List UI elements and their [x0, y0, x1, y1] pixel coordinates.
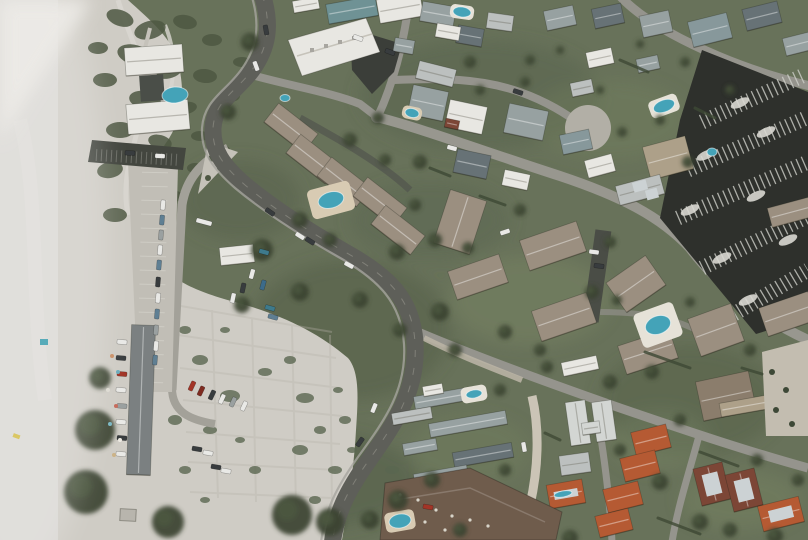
shrub — [202, 34, 222, 46]
tree — [291, 283, 309, 301]
shrub — [385, 466, 399, 474]
tree — [525, 55, 535, 65]
vehicle — [153, 325, 158, 335]
tree — [723, 523, 737, 537]
tree — [448, 343, 462, 357]
shrub — [347, 447, 357, 453]
tree — [556, 46, 564, 54]
tree — [352, 292, 368, 308]
tree — [241, 33, 259, 51]
tree — [393, 323, 407, 337]
tree — [462, 242, 474, 254]
shrub — [200, 497, 210, 503]
tree — [682, 156, 694, 168]
swimming-pool — [280, 95, 290, 102]
aerial-photo — [0, 0, 808, 540]
tree — [498, 325, 512, 339]
beach-umbrella — [118, 438, 122, 442]
tree — [520, 77, 530, 87]
tree — [541, 361, 553, 373]
tree — [372, 112, 384, 124]
vehicle — [155, 293, 160, 303]
shrub — [292, 445, 308, 455]
building-roof — [126, 99, 190, 134]
tree — [534, 344, 546, 356]
tree — [388, 490, 408, 510]
vehicle — [158, 230, 163, 240]
tree — [234, 297, 250, 313]
building-roof — [393, 37, 415, 54]
vehicle — [154, 309, 159, 319]
tree — [612, 295, 622, 305]
beach-umbrella — [110, 354, 114, 358]
vehicle — [160, 200, 165, 210]
tree — [499, 464, 511, 476]
tree — [379, 154, 391, 166]
shrub — [220, 327, 230, 333]
vehicle — [116, 419, 126, 424]
tree — [725, 85, 735, 95]
tree — [685, 297, 695, 307]
tree — [409, 199, 421, 211]
tree — [617, 127, 627, 137]
shrub — [314, 426, 326, 434]
building-roof — [581, 421, 600, 435]
tree — [636, 40, 644, 48]
shrub — [235, 437, 245, 443]
vehicle — [159, 215, 164, 225]
roof-vent — [434, 508, 437, 511]
vehicle — [117, 339, 127, 344]
beach-umbrella — [116, 370, 120, 374]
tree — [792, 474, 804, 486]
tree — [744, 344, 756, 356]
tree — [680, 57, 690, 67]
tree — [604, 236, 616, 248]
beach-umbrella — [108, 422, 112, 426]
vehicle — [155, 277, 160, 287]
vehicle — [116, 387, 126, 392]
tree — [692, 514, 708, 530]
tree — [585, 285, 599, 299]
vehicle — [117, 403, 127, 408]
vehicle — [156, 260, 161, 270]
roof-vent — [450, 514, 453, 517]
tree — [645, 365, 659, 379]
tree — [428, 233, 442, 247]
shrub — [88, 42, 108, 54]
tree — [361, 511, 379, 529]
shrub — [328, 466, 342, 474]
shrub — [333, 387, 343, 393]
tree — [494, 384, 506, 396]
tree — [603, 375, 617, 389]
building-roof — [126, 325, 155, 476]
vehicle — [157, 245, 162, 255]
vehicle — [125, 150, 135, 155]
roof-vent — [423, 520, 426, 523]
tree — [475, 85, 485, 95]
swimming-pool — [707, 148, 717, 156]
tree — [389, 244, 405, 260]
shrub — [179, 466, 191, 474]
shrub — [309, 496, 321, 504]
tree — [614, 444, 626, 456]
beach-umbrella — [106, 388, 110, 392]
shrub — [203, 426, 217, 434]
beach-umbrella — [114, 404, 118, 408]
concrete-pads — [762, 340, 808, 436]
vehicle — [155, 153, 165, 158]
shrub — [192, 355, 208, 365]
vehicle — [116, 451, 126, 456]
tree — [292, 212, 308, 228]
building-roof — [559, 452, 591, 476]
tree — [323, 233, 337, 247]
tree — [272, 495, 312, 535]
shrub — [296, 393, 314, 403]
shrub — [168, 415, 182, 425]
tree — [413, 155, 427, 169]
tree — [514, 204, 526, 216]
tree — [220, 104, 236, 120]
building-roof — [219, 244, 255, 265]
building-roof — [124, 44, 184, 76]
tree — [431, 303, 449, 321]
building-roof — [486, 12, 514, 31]
tree — [343, 133, 357, 147]
tree — [751, 454, 763, 466]
aerial-photo-canvas — [0, 0, 808, 540]
roof-vent — [486, 524, 489, 527]
shrub — [339, 416, 351, 424]
tree — [453, 523, 467, 537]
tree — [316, 508, 344, 536]
tree — [464, 56, 476, 68]
tree — [424, 472, 440, 488]
tree — [152, 506, 184, 538]
tree — [652, 474, 668, 490]
shrub — [93, 73, 117, 87]
vehicle — [153, 341, 158, 351]
vehicle — [152, 355, 157, 365]
roof-vent — [443, 528, 446, 531]
shrub — [179, 326, 191, 334]
beach-umbrella — [112, 453, 116, 457]
shrub — [258, 368, 272, 376]
roof-vent — [468, 518, 471, 521]
tree — [596, 86, 604, 94]
shrub — [284, 356, 296, 364]
beach-hut — [120, 509, 137, 522]
vehicle — [116, 355, 126, 360]
tree — [674, 414, 686, 426]
sport-court — [139, 74, 165, 102]
roof-vent — [416, 498, 419, 501]
tree — [655, 115, 665, 125]
shrub — [249, 466, 261, 474]
